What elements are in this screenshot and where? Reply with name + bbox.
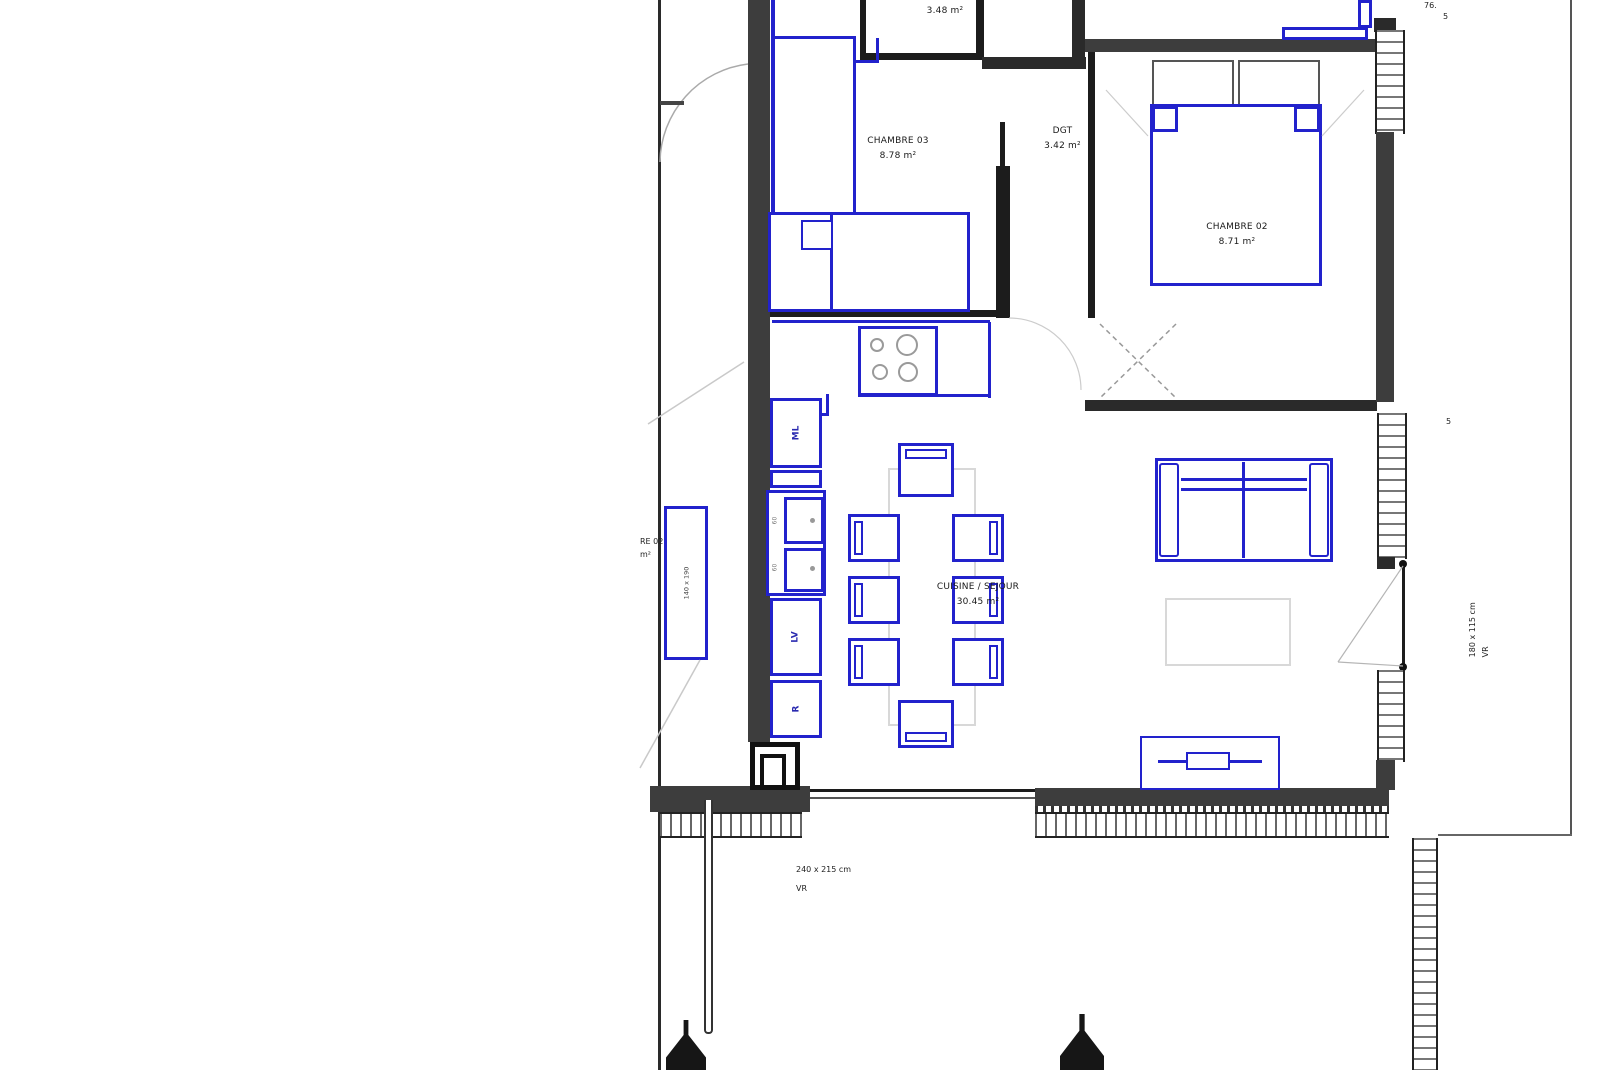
terrace-tree-right [1060,1014,1104,1070]
chair-back [854,521,863,555]
chair-back [854,645,863,679]
chambre02-bottom-wall [1085,400,1377,411]
chambre02-closet-diag-right [1322,90,1364,136]
kitchen-counter-right-edge [988,322,991,398]
top-corner-blue [1358,0,1372,28]
right-window-shutter: VR [1480,602,1493,657]
french-door-leaf [1402,565,1405,667]
dishwasher-label: LV [791,631,801,642]
cuisine-sejour-label: CUISINE / SEJOUR 30.45 m² [898,580,1058,611]
sink-drain-bottom [810,566,815,571]
chambre02-label: CHAMBRE 02 8.71 m² [1163,220,1311,251]
dgt-door-jamb [996,166,1010,318]
chambre03-name: CHAMBRE 03 [828,134,968,149]
radiator-symbol [1186,752,1230,770]
coffee-table [1165,598,1291,666]
annotation-right-mid: 5 [1446,416,1451,429]
chair-back [854,583,863,617]
terrace-tree-left [666,1020,706,1070]
annotation-top-right-1: 76. [1424,0,1437,13]
neighbor-area-partial: m² [640,549,686,562]
sink-dim-bottom: 60 [768,552,782,582]
dgt-label: DGT 3.42 m² [1005,124,1120,155]
bottom-window-shutter: VR [796,883,916,896]
french-door-swing-2 [1338,662,1403,666]
kitchen-counter-bottom-line [858,394,991,397]
chambre03-door-notch-3 [876,38,879,62]
dining-chair-left-3 [848,638,900,686]
door-hinge-dot-top [1399,560,1407,568]
right-window-low [1377,670,1405,762]
chambre03-door-notch-1 [853,38,856,62]
chambre02-top-wall [1085,39,1387,52]
chair-back [905,732,947,742]
chambre02-bed-notch-right [1294,106,1320,132]
chambre03-bed-fold [801,220,833,250]
chambre03-closet-wall-h [774,36,856,39]
cuisine-sejour-name: CUISINE / SEJOUR [898,580,1058,595]
right-wall-upper [1376,132,1394,402]
entry-door-frame-inner [760,754,786,790]
dgt-name: DGT [1005,124,1120,139]
chambre02-door-dash-2 [1100,324,1176,398]
dining-chair-left-1 [848,514,900,562]
bottom-sill-line2 [810,797,1036,799]
bathroom-area-label: 3.48 m² [890,4,1000,19]
chambre02-bed-notch-left [1152,106,1178,132]
neighbor-name-partial: RE 02 [640,536,686,549]
dgt-area: 3.42 m² [1005,139,1120,154]
dining-chair-top [898,443,954,497]
fridge: R [770,680,822,738]
floor-plan-page: { "rooms": { "chambre03": {"name": "CHAM… [0,0,1606,1070]
dining-chair-left-2 [848,576,900,624]
sofa-armrest-right [1309,463,1329,557]
right-window-dimension: 180 x 115 cm [1467,602,1480,657]
dining-chair-right-1 [952,514,1004,562]
left-party-wall [658,0,661,1070]
neighbor-swing-line-1 [648,362,744,424]
bottom-window-label: 240 x 215 cm VR [796,864,916,896]
hall-wall-vertical [1072,0,1085,68]
neighbor-door-arc [660,64,748,162]
chambre03-area: 8.78 m² [828,149,968,164]
dgt-door-arc [1009,318,1081,390]
cuisine-sejour-area: 30.45 m² [898,595,1058,610]
bottom-window-dimension: 240 x 215 cm [796,864,916,877]
washing-machine: ML [770,398,822,468]
neighbor-swing-line-2 [640,660,700,768]
property-line-horizontal [1438,834,1572,836]
sink-basin-top [784,497,824,544]
french-door-swing-1 [1338,566,1403,662]
kitchen-counter-gap [770,470,822,488]
stove-burner-4 [898,362,918,382]
terrace-fence [1412,838,1438,1070]
annotation-top-right-2: 5 [1443,11,1448,24]
dishwasher: LV [770,598,822,676]
chambre02-door-dash-1 [1100,324,1176,398]
washing-machine-label: ML [791,426,801,441]
chambre02-area: 8.71 m² [1163,235,1311,250]
neighbor-label: RE 02 m² [640,536,686,562]
top-window-blue [1282,27,1368,40]
dining-chair-right-3 [952,638,1004,686]
chair-back [989,521,998,555]
chambre03-bed [768,212,970,312]
stove-burner-1 [870,338,884,352]
main-vertical-wall [748,0,770,742]
sink-dim-top: 60 [768,505,782,535]
chair-back [905,449,947,459]
property-line-right [1570,0,1572,836]
bottom-window-left [660,812,802,838]
bottom-window-right [1035,812,1389,838]
sofa-armrest-left [1159,463,1179,557]
right-window-label: 180 x 115 cm VR [1420,575,1540,685]
fridge-label: R [791,706,801,713]
sink-drain-top [810,518,815,523]
right-window-top [1375,30,1405,134]
hall-wall-horizontal [982,57,1086,69]
drainpipe [704,800,713,1034]
chambre03-wall [771,0,775,214]
bottom-sill-line1 [810,789,1036,792]
right-wall-bottom [1376,760,1395,790]
sofa-seat-divider [1242,462,1245,558]
chair-back [989,645,998,679]
stove-burner-2 [896,334,918,356]
kitchen-counter-top-line [772,320,990,323]
stove-burner-3 [872,364,888,380]
chambre03-label: CHAMBRE 03 8.78 m² [828,134,968,165]
right-window-mid [1377,413,1407,559]
sink-basin-bottom [784,548,824,592]
chambre02-left-wall [1088,52,1095,318]
dining-chair-bottom [898,700,954,748]
right-wall-stub [1377,557,1395,569]
chambre02-name: CHAMBRE 02 [1163,220,1311,235]
